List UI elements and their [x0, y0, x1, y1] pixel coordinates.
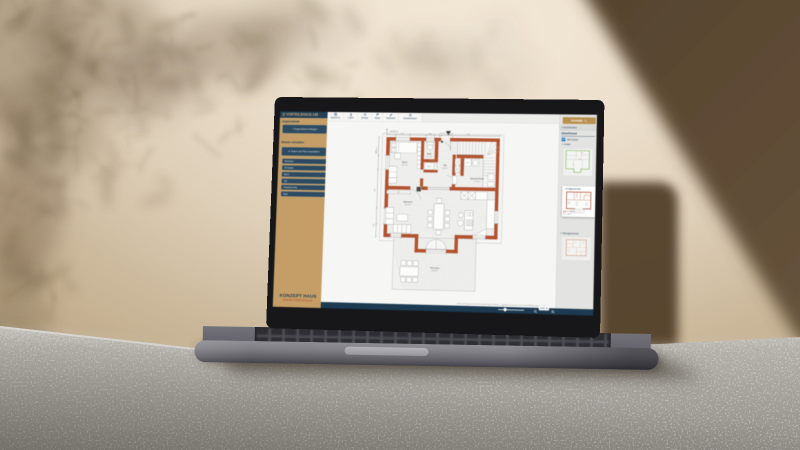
- svg-text:10,00 m: 10,00 m: [390, 131, 398, 133]
- svg-text:21,8 m²: 21,8 m²: [431, 269, 438, 272]
- svg-text:1,43: 1,43: [400, 133, 403, 135]
- svg-text:2,42: 2,42: [373, 224, 375, 227]
- svg-text:4,81: 4,81: [466, 134, 469, 136]
- svg-text:3,64: 3,64: [374, 189, 376, 192]
- svg-text:46,3 m²: 46,3 m²: [405, 203, 412, 206]
- svg-text:0,88: 0,88: [428, 133, 431, 135]
- svg-text:6,9 m²: 6,9 m²: [442, 167, 448, 170]
- svg-text:6,7 m²: 6,7 m²: [474, 180, 480, 183]
- svg-text:1,39: 1,39: [375, 150, 377, 153]
- svg-text:11,5 m²: 11,5 m²: [401, 163, 408, 166]
- svg-text:2,7 m²: 2,7 m²: [426, 155, 432, 158]
